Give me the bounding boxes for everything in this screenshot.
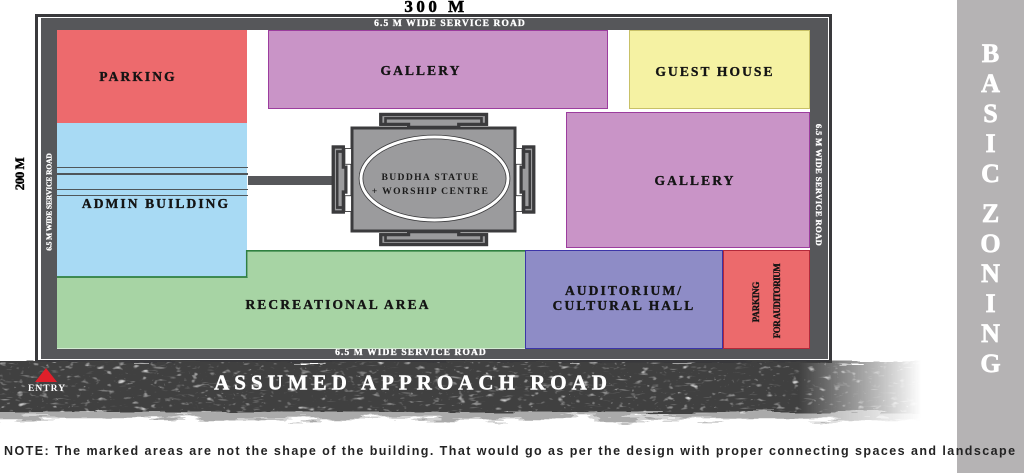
svg-text:BUDDHA STATUE: BUDDHA STATUE — [382, 172, 480, 183]
svg-text:+ WORSHIP CENTRE: + WORSHIP CENTRE — [372, 186, 490, 197]
